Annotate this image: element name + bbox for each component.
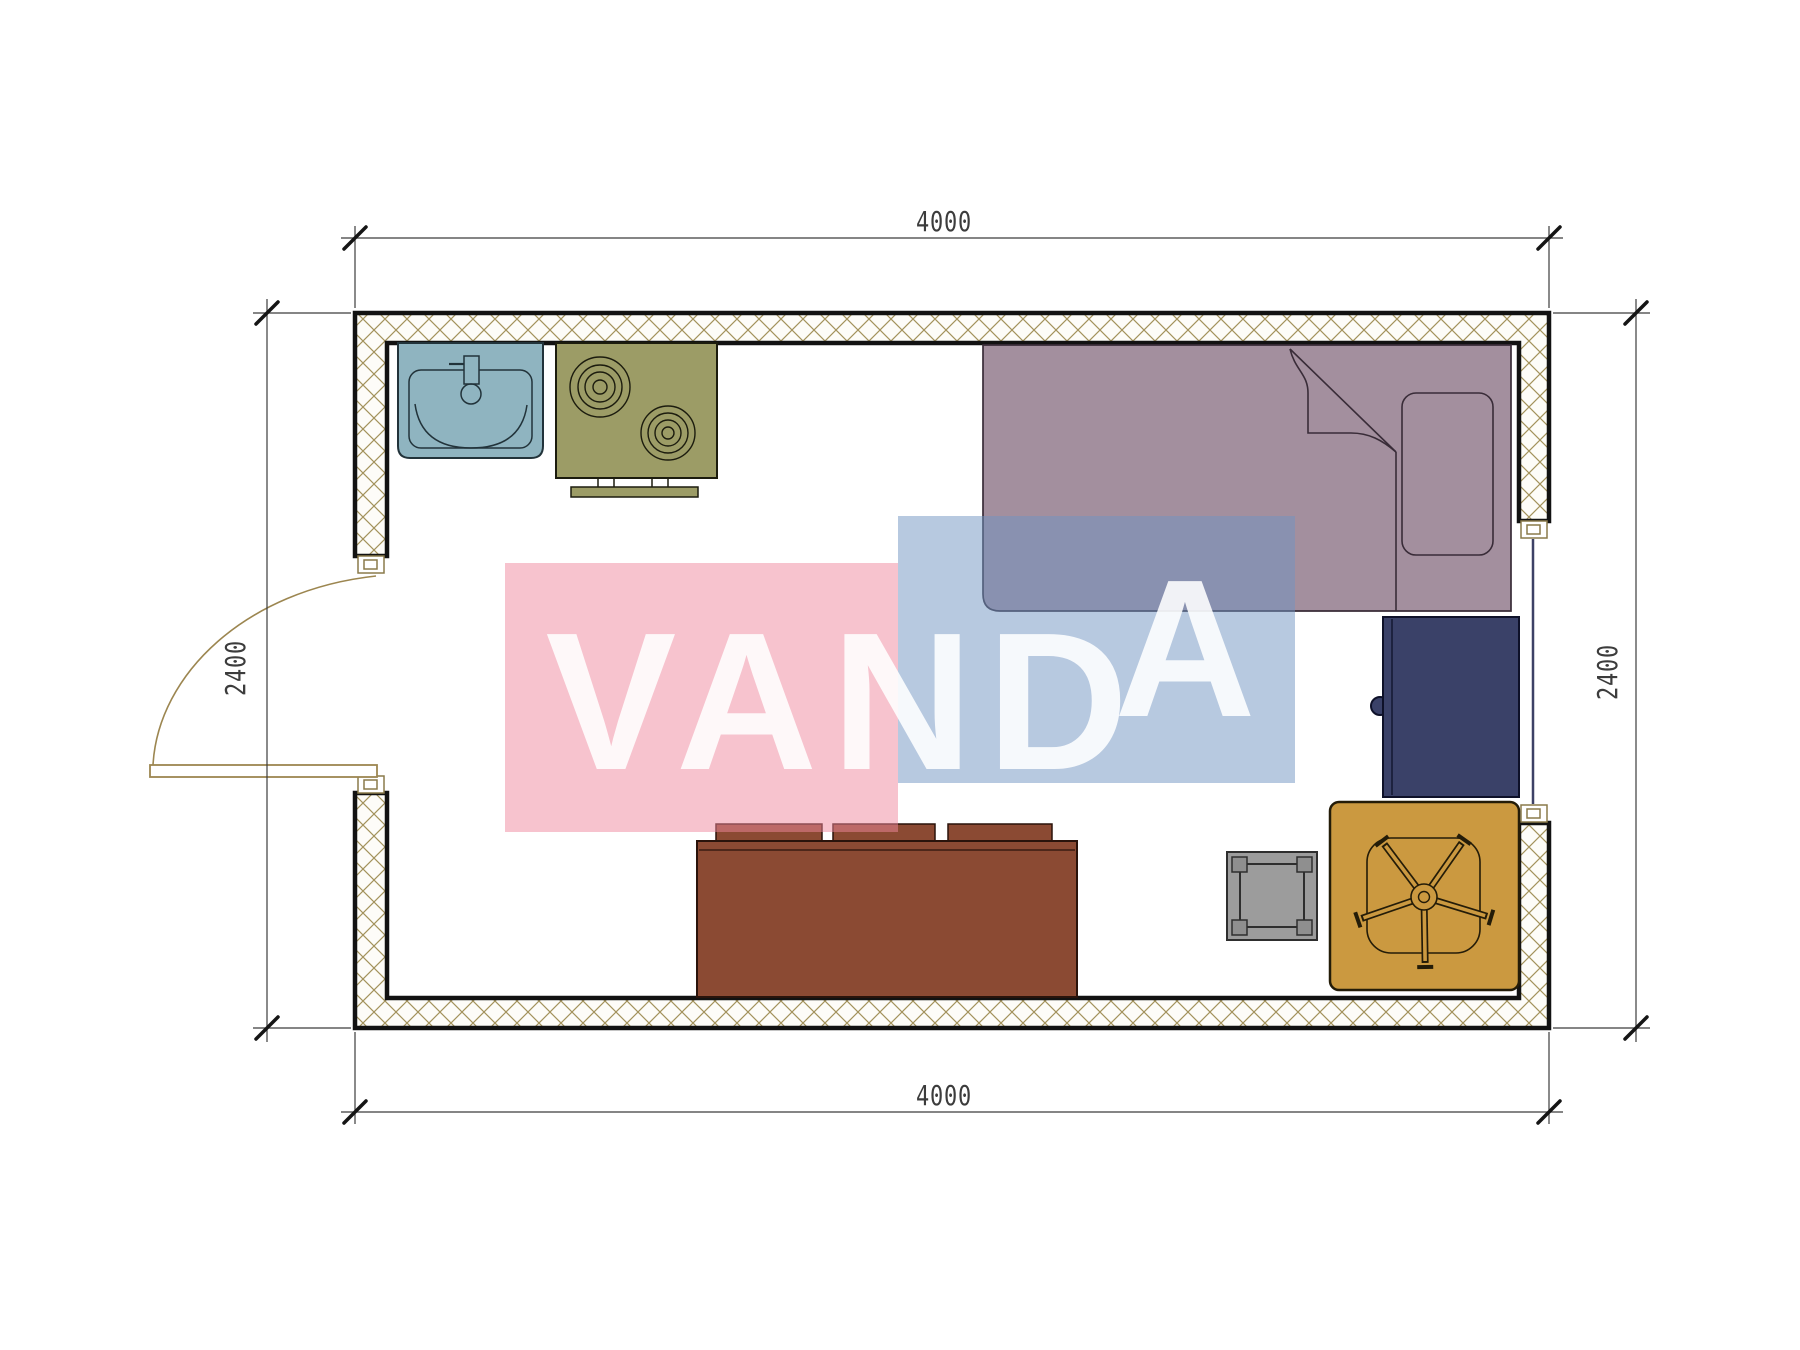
dimension-left-label: 2400 [219,640,252,696]
watermark-text-accent: A [1114,539,1270,758]
chair-hub [1411,884,1437,910]
stove-feet [598,478,668,487]
dimension-left: 2400 [219,299,351,1042]
sink-faucet [464,356,479,384]
sofa-seat [697,841,1077,997]
stool [1227,852,1317,940]
stove [556,343,717,497]
window-frame-top-stop [1527,525,1540,534]
dimension-bottom-label: 4000 [916,1079,972,1112]
window-frame-bottom-stop [1527,809,1540,818]
floor-plan-canvas: 4000 4000 2400 2400 VAND A [0,0,1800,1350]
sofa [697,824,1077,997]
dimension-right-label: 2400 [1591,644,1624,700]
door-leaf [150,765,377,777]
floor-plan-page: 4000 4000 2400 2400 VAND A [0,0,1800,1350]
window [1521,521,1547,822]
dimension-top: 4000 [341,205,1563,308]
stove-body [556,343,717,478]
stove-handle-bar [571,487,698,497]
watermark: VAND A [505,516,1295,832]
desk-top [1383,617,1519,797]
dimension-top-label: 4000 [916,205,972,238]
desk [1371,617,1519,797]
door-jamb-top-stop [364,560,377,569]
work-table [1330,802,1519,990]
door-jamb-bottom-stop [364,780,377,789]
bed-pillow [1402,393,1493,555]
dimension-right: 2400 [1553,299,1650,1042]
watermark-text-main: VAND [546,592,1143,811]
sink [398,343,543,458]
door-swing-arc [153,576,376,765]
dimension-bottom: 4000 [341,1032,1563,1124]
